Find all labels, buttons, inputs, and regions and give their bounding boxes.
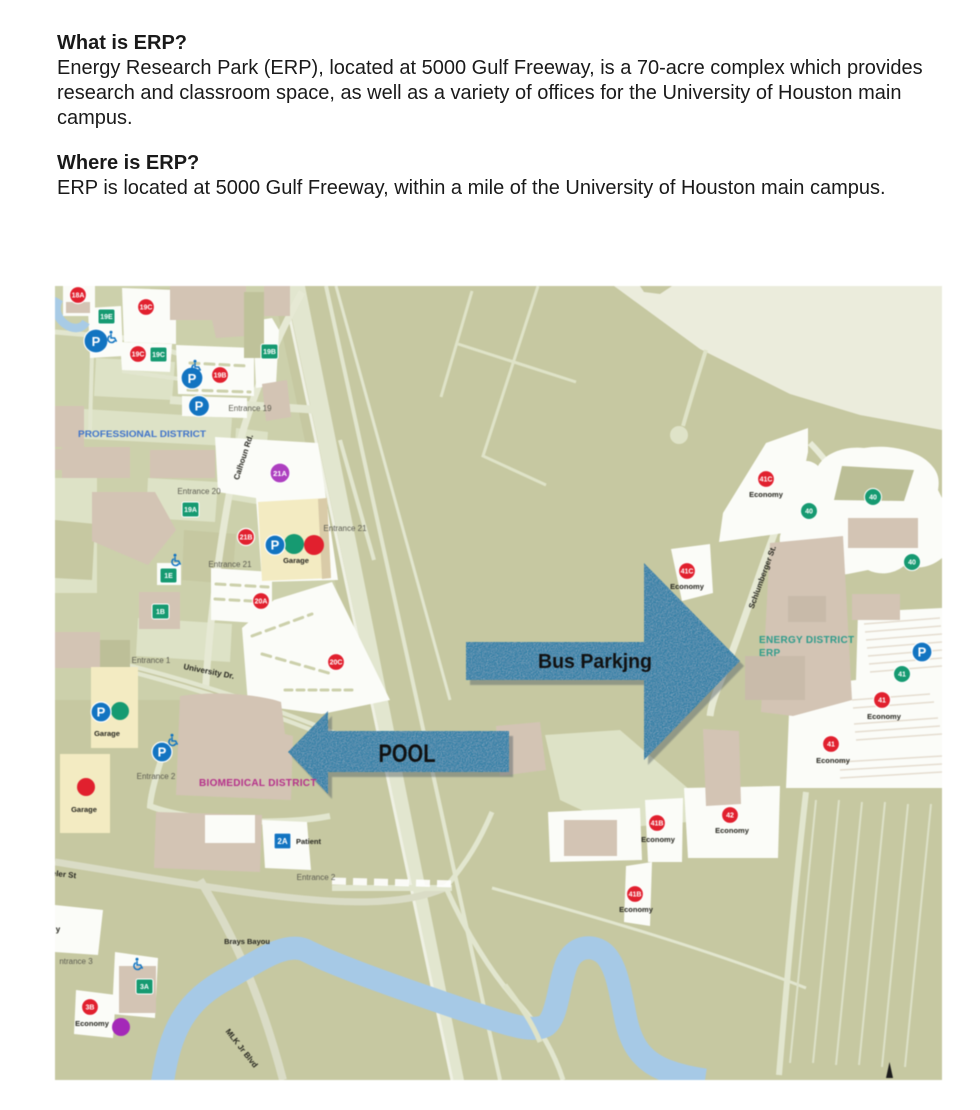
svg-text:19B: 19B [263, 349, 276, 356]
svg-text:18A: 18A [72, 293, 85, 300]
svg-text:Bus Parkjng: Bus Parkjng [538, 650, 652, 673]
svg-text:19A: 19A [184, 507, 197, 514]
svg-text:41B: 41B [651, 821, 664, 828]
svg-text:P: P [158, 745, 167, 760]
svg-text:2A: 2A [277, 837, 287, 846]
svg-text:Entrance 1: Entrance 1 [132, 656, 171, 665]
svg-text:41C: 41C [760, 477, 773, 484]
svg-text:41B: 41B [629, 892, 642, 899]
svg-text:Entrance 19: Entrance 19 [228, 404, 272, 413]
svg-text:Garage: Garage [71, 805, 97, 814]
svg-text:y: y [56, 925, 61, 934]
svg-text:3B: 3B [86, 1005, 95, 1012]
svg-text:Garage: Garage [283, 556, 309, 565]
svg-text:P: P [271, 538, 280, 553]
svg-text:40: 40 [908, 560, 916, 567]
svg-text:POOL: POOL [379, 740, 436, 768]
svg-text:Economy: Economy [867, 712, 902, 721]
svg-text:19B: 19B [214, 373, 227, 380]
svg-text:ntrance 3: ntrance 3 [59, 957, 93, 966]
svg-text:19C: 19C [132, 352, 145, 359]
svg-text:41C: 41C [681, 569, 694, 576]
svg-text:BIOMEDICAL DISTRICT: BIOMEDICAL DISTRICT [199, 778, 317, 789]
svg-text:PROFESSIONAL DISTRICT: PROFESSIONAL DISTRICT [78, 429, 206, 440]
svg-text:1E: 1E [164, 573, 173, 580]
svg-text:20C: 20C [330, 660, 343, 667]
svg-text:ERP: ERP [759, 648, 780, 659]
svg-text:Entrance 20: Entrance 20 [177, 487, 221, 496]
svg-text:Economy: Economy [619, 905, 654, 914]
svg-text:19C: 19C [140, 305, 153, 312]
svg-text:40: 40 [869, 495, 877, 502]
svg-text:P: P [195, 399, 204, 414]
svg-text:Patient: Patient [296, 837, 322, 846]
svg-text:P: P [918, 645, 927, 660]
svg-text:42: 42 [726, 813, 734, 820]
svg-text:Entrance 2: Entrance 2 [137, 772, 176, 781]
svg-text:ENERGY DISTRICT: ENERGY DISTRICT [759, 635, 854, 646]
svg-text:Economy: Economy [816, 756, 851, 765]
svg-text:P: P [97, 705, 106, 720]
svg-text:1B: 1B [156, 609, 165, 616]
svg-text:P: P [188, 371, 197, 386]
svg-text:Entrance 21: Entrance 21 [323, 524, 367, 533]
svg-text:Entrance 2: Entrance 2 [297, 873, 336, 882]
svg-text:20A: 20A [255, 599, 268, 606]
svg-text:Brays Bayou: Brays Bayou [224, 937, 270, 946]
svg-text:40: 40 [805, 509, 813, 516]
svg-text:Garage: Garage [94, 729, 120, 738]
svg-text:19E: 19E [100, 314, 113, 321]
svg-text:19C: 19C [152, 352, 165, 359]
svg-text:Entrance 21: Entrance 21 [208, 560, 252, 569]
svg-text:21A: 21A [273, 469, 287, 478]
svg-text:P: P [92, 334, 101, 349]
svg-text:41: 41 [898, 672, 906, 679]
svg-text:41: 41 [827, 742, 835, 749]
svg-text:41: 41 [878, 698, 886, 705]
svg-text:Economy: Economy [670, 582, 705, 591]
svg-text:3A: 3A [140, 984, 149, 991]
svg-text:Economy: Economy [715, 826, 750, 835]
svg-text:Economy: Economy [75, 1019, 110, 1028]
svg-text:21B: 21B [240, 535, 253, 542]
svg-text:Economy: Economy [749, 490, 784, 499]
svg-text:Economy: Economy [641, 835, 676, 844]
